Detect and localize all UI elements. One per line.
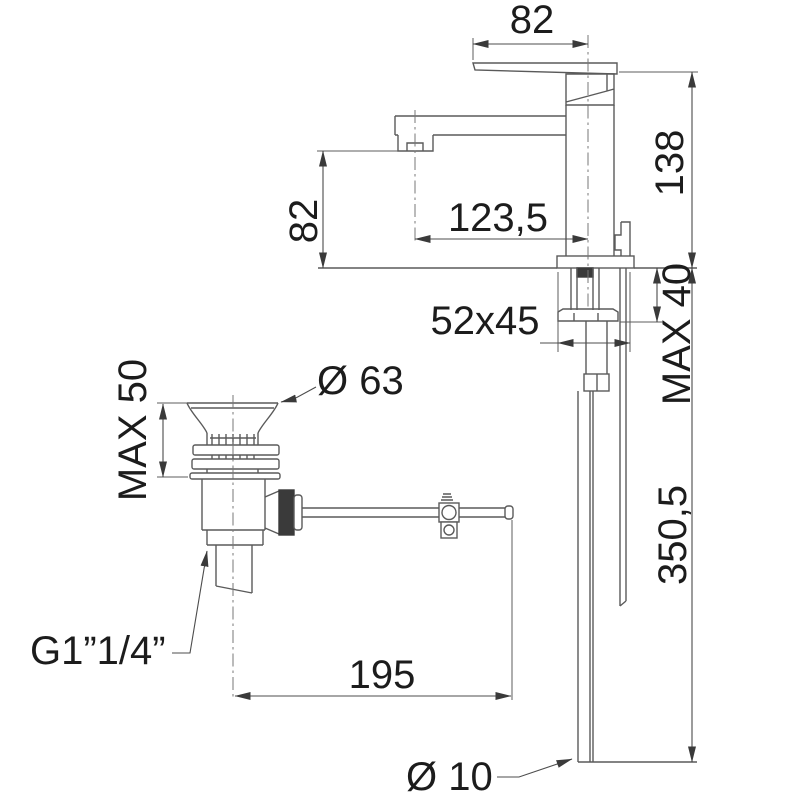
horizontal-rod	[302, 508, 505, 517]
base-flange	[557, 256, 634, 268]
dim-rod-length: 195	[235, 520, 512, 700]
pop-up-rod-knob	[615, 222, 630, 256]
spout-reach-label: 123,5	[448, 196, 548, 240]
dim-handle-length: 82	[473, 0, 588, 60]
overall-height-label: 138	[648, 130, 692, 197]
dim-max-deck-thickness: MAX 40	[620, 263, 699, 405]
spout	[395, 116, 566, 135]
waste-thread-label: G1”1/4”	[30, 629, 166, 673]
dim-spout-height: 82	[282, 151, 399, 268]
hose-diameter-label: Ø 10	[406, 755, 493, 799]
dim-overall-height: 138	[619, 72, 698, 268]
rod-port-cap	[294, 495, 302, 530]
base-footprint-label: 52x45	[431, 299, 540, 343]
body-column	[566, 105, 614, 256]
waste-tailpiece	[216, 545, 252, 593]
rod-port-cone	[265, 491, 279, 534]
spout-height-label: 82	[282, 199, 326, 244]
rod-end-cap	[505, 506, 513, 519]
dim-base-footprint: 52x45	[431, 272, 630, 352]
waste-body	[202, 479, 265, 545]
mounting-nut	[558, 309, 618, 321]
handle-lever	[473, 63, 617, 74]
rod-seal-band	[279, 490, 294, 535]
seal-washer	[190, 473, 280, 479]
dim-hose-diameter: Ø 10	[406, 755, 572, 799]
technical-drawing: 82 138 82 123,5 52x45 MAX 40 MAX 50 350,…	[0, 0, 800, 800]
rod-length-label: 195	[349, 653, 416, 697]
handle-base-block	[566, 74, 614, 105]
drawing-page: 82 138 82 123,5 52x45 MAX 40 MAX 50 350,…	[0, 0, 800, 800]
locknut-ring-1	[193, 445, 279, 455]
drain-assembly	[187, 403, 513, 593]
dim-waste-thread: G1”1/4”	[30, 551, 207, 673]
dim-waste-flange-diameter: Ø 63	[281, 359, 404, 403]
dim-spout-reach: 123,5	[415, 196, 588, 240]
handle-length-label: 82	[510, 0, 555, 42]
locknut-ring-2	[192, 459, 279, 469]
waste-flange-diameter-label: Ø 63	[317, 359, 404, 403]
connection-tube	[586, 321, 607, 374]
dim-max-clamp-range: MAX 50	[111, 359, 192, 501]
clamp-screw	[441, 494, 453, 500]
hose-length-label: 350,5	[651, 485, 695, 585]
max-clamp-range-label: MAX 50	[111, 359, 155, 501]
cartridge-hatch	[577, 268, 593, 277]
pull-rod-vertical	[620, 268, 626, 606]
